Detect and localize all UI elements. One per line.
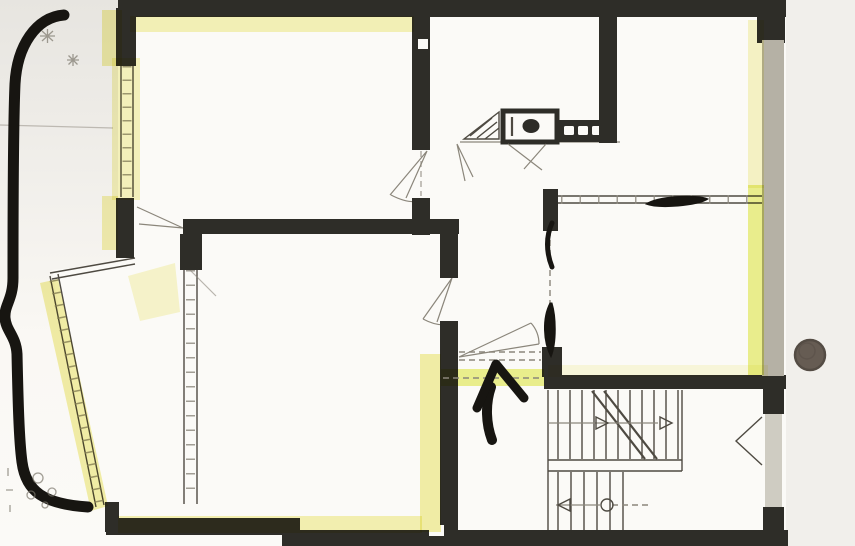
stairhall-top-wall — [544, 375, 786, 389]
wall-topleft-kitchen — [412, 14, 430, 150]
exterior-wall-top — [118, 0, 786, 17]
exterior-wall-right — [762, 40, 784, 376]
highlight-top-wall — [130, 16, 414, 32]
hallway-wall-upper — [440, 233, 458, 278]
right-wall-stair-upper — [763, 389, 784, 414]
kitchen-divider-wall — [599, 16, 617, 143]
wall-room-divider — [183, 219, 459, 234]
floor-plan-drawing — [0, 0, 855, 546]
hole-punch-dot — [794, 339, 826, 371]
highlight-hall-wall — [420, 354, 441, 532]
stove-burner-1 — [564, 126, 574, 135]
star-doodle-1 — [40, 29, 55, 43]
window-wall-pier — [180, 234, 202, 270]
highlight-left-upper — [102, 10, 122, 66]
star-doodle-2 — [67, 54, 79, 66]
highlight-bottom-wall — [118, 516, 422, 533]
highlight-right-wall-lower — [748, 185, 764, 375]
bottomleft-room-right-wall — [440, 376, 458, 534]
wall-notch — [418, 39, 428, 49]
highlight-left-pier — [102, 196, 118, 250]
highlight-left-window — [112, 58, 140, 200]
right-wall-stair-opening — [765, 414, 782, 507]
hallway-wall-lower — [440, 321, 458, 376]
stove-burner-2 — [578, 126, 588, 135]
entrance-arrow-shaft — [487, 387, 492, 440]
scanned-floor-plan — [0, 0, 855, 546]
highlight-right-wall-upper — [748, 20, 764, 188]
highlight-stairhall-wall — [548, 365, 768, 377]
left-wall-pier — [116, 198, 134, 258]
sink-basin — [523, 119, 540, 133]
